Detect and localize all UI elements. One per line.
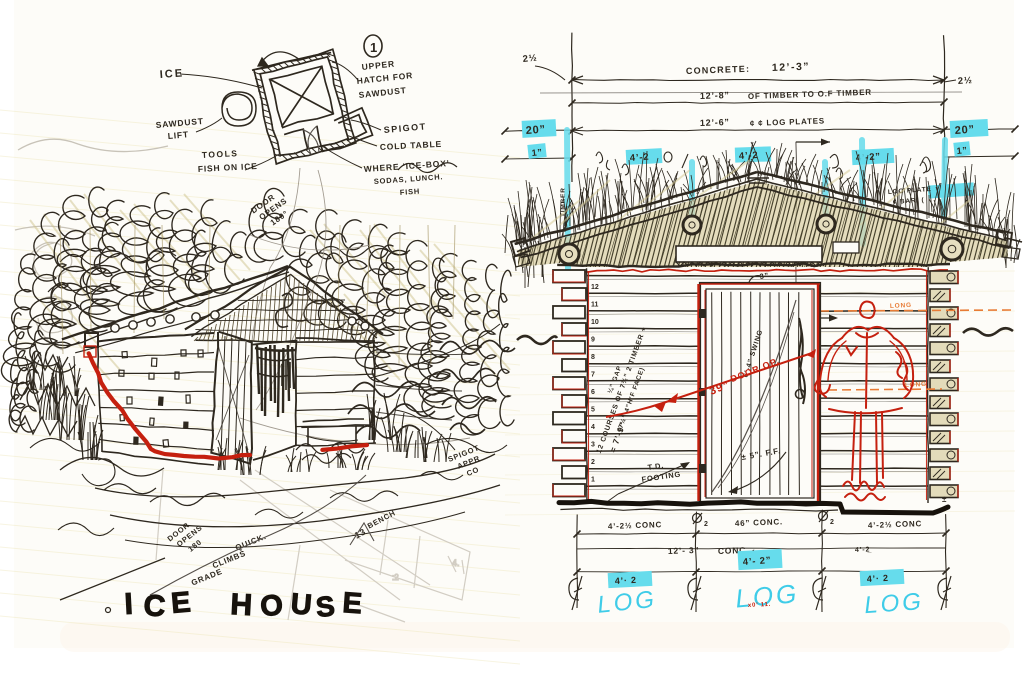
svg-text:2½: 2½ (522, 52, 538, 64)
svg-text:1”: 1” (531, 147, 543, 158)
svg-text:4’-2½ CONC: 4’-2½ CONC (868, 519, 923, 530)
svg-text:5: 5 (591, 407, 595, 414)
svg-text:4’· 2: 4’· 2 (615, 575, 638, 586)
svg-text:9: 9 (591, 337, 595, 344)
svg-text:2: 2 (591, 459, 595, 466)
svg-text:´: ´ (752, 549, 755, 558)
svg-text:4’· 2: 4’· 2 (867, 573, 890, 584)
svg-text:2: 2 (830, 519, 835, 526)
svg-text:11: 11 (591, 302, 599, 309)
svg-text:12’- 3”: 12’- 3” (668, 545, 700, 556)
svg-text:12’-3”: 12’-3” (772, 61, 811, 74)
svg-text:4’-2̲: 4’-2̲ (855, 546, 873, 554)
svg-text:2½: 2½ (957, 75, 973, 87)
svg-text:E: E (170, 586, 192, 620)
svg-text:8: 8 (591, 354, 595, 361)
svg-text:U: U (289, 588, 313, 622)
svg-text:3”: 3” (759, 271, 770, 281)
svg-text:±: ± (942, 495, 947, 504)
svg-text:LIFT: LIFT (167, 129, 189, 141)
svg-text:4.: 4. (452, 558, 460, 568)
svg-text:LONG: LONG (905, 381, 927, 389)
svg-text:TOOLS: TOOLS (202, 148, 239, 160)
svg-text:1: 1 (591, 477, 595, 484)
svg-text:LOG: LOG (863, 588, 924, 619)
svg-text:E: E (342, 587, 364, 620)
svg-text:LONG: LONG (890, 302, 912, 310)
svg-text:O: O (259, 589, 284, 622)
svg-text:12’-6”: 12’-6” (700, 117, 730, 128)
svg-text:20”: 20” (954, 124, 975, 137)
svg-text:46” CONC.: 46” CONC. (735, 517, 783, 528)
svg-text:4: 4 (591, 424, 595, 431)
svg-text:x0’ 11.: x0’ 11. (748, 602, 772, 609)
svg-text:H: H (230, 588, 253, 622)
svg-text:7: 7 (591, 372, 595, 379)
svg-text:S: S (314, 590, 336, 623)
svg-text:1: 1 (370, 40, 377, 55)
svg-text:3: 3 (591, 442, 595, 449)
svg-text:6: 6 (591, 389, 595, 396)
svg-text:1”: 1” (956, 145, 968, 156)
svg-text::2: :2 (392, 573, 399, 582)
svg-text:LOG: LOG (734, 578, 800, 613)
svg-text:I: I (124, 588, 134, 621)
svg-text:12: 12 (591, 284, 599, 291)
svg-text:20”: 20” (525, 124, 546, 137)
svg-text:4’- 2”: 4’- 2” (742, 555, 771, 568)
svg-text:FISH: FISH (400, 187, 421, 197)
svg-text:10: 10 (591, 319, 599, 326)
svg-text:C: C (143, 589, 167, 623)
svg-text:4’-2½ CONC: 4’-2½ CONC (608, 520, 663, 531)
svg-text:2: 2 (704, 521, 709, 528)
svg-text:12’-8”: 12’-8” (700, 90, 730, 101)
